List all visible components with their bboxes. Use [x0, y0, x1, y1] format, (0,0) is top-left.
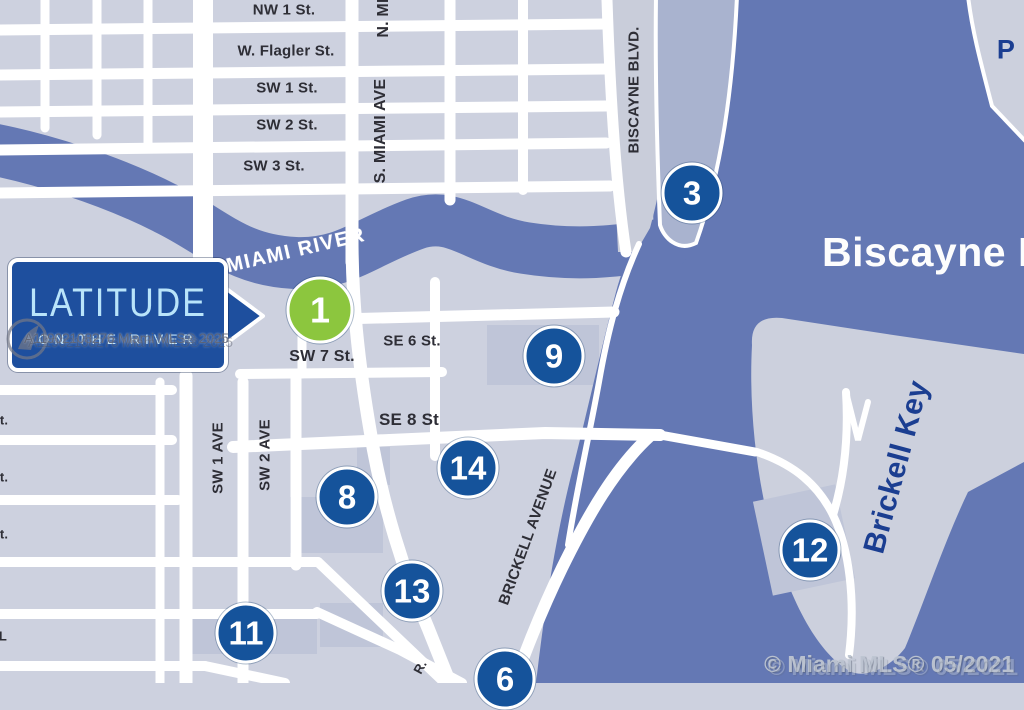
marker-14[interactable]: 14	[438, 438, 499, 499]
map-canvas: NW 1 St. W. Flagler St. SW 1 St. SW 2 St…	[0, 0, 1024, 683]
edge-fragment-2: t.	[0, 470, 8, 485]
street-label-sw-1-ave: SW 1 AVE	[210, 422, 227, 494]
street-label-n-miami-ave: N. MI	[375, 0, 393, 38]
street-label-s-miami-ave: S. MIAMI AVE	[372, 79, 390, 184]
marker-6[interactable]: 6	[475, 649, 536, 710]
street-label-sw-2-ave: SW 2 AVE	[257, 419, 274, 491]
port-label: P	[997, 35, 1015, 66]
edge-fragment-3: t.	[0, 527, 8, 542]
biscayne-bay-label: Biscayne B	[822, 229, 1024, 276]
marker-1[interactable]: 1	[287, 277, 354, 344]
edge-fragment-4: L	[0, 629, 7, 644]
street-label-biscayne-blvd: BISCAYNE BLVD.	[626, 27, 643, 154]
street-label-w-flagler-st: W. Flagler St.	[238, 43, 335, 60]
marker-13[interactable]: 13	[382, 561, 443, 622]
street-label-sw-7-st: SW 7 St.	[289, 348, 355, 366]
edge-fragment-1: t.	[0, 413, 8, 428]
mls-listing-watermark-echo: A11902108276 Miami MLS® 2025	[28, 334, 258, 350]
street-label-se-8-st: SE 8 St	[379, 410, 439, 430]
marker-3[interactable]: 3	[662, 163, 723, 224]
street-label-sw-1-st: SW 1 St.	[256, 80, 318, 97]
street-label-sw-2-st: SW 2 St.	[256, 117, 318, 134]
marker-11[interactable]: 11	[216, 603, 277, 664]
marker-12[interactable]: 12	[780, 520, 841, 581]
marker-9[interactable]: 9	[524, 326, 585, 387]
marker-8[interactable]: 8	[317, 467, 378, 528]
street-label-nw-1-st: NW 1 St.	[253, 2, 315, 19]
latitude-sign-title: LATITUDE	[29, 280, 207, 326]
mls-copyright-watermark-echo: © Miami MLS® 05/2021	[768, 654, 1018, 681]
street-label-se-6-st: SE 6 St.	[383, 333, 440, 350]
street-label-sw-3-st: SW 3 St.	[243, 158, 305, 175]
